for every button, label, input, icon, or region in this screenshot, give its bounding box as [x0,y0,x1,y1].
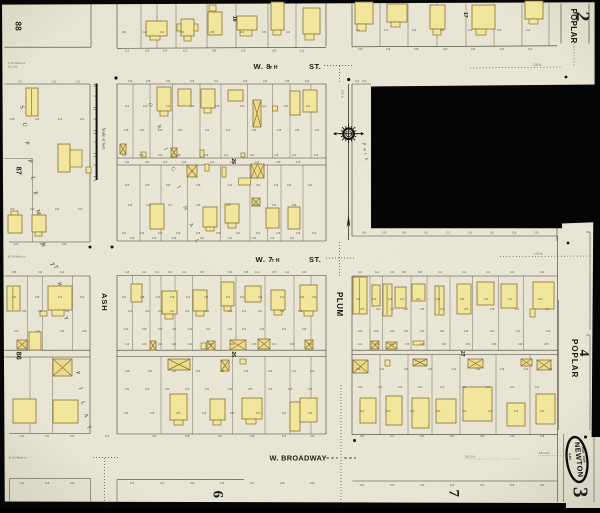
svg-text:118: 118 [196,231,201,235]
svg-text:114: 114 [20,434,25,438]
svg-text:2: 2 [572,12,594,22]
svg-text:116: 116 [282,411,287,415]
svg-text:114: 114 [272,203,277,207]
svg-text:106: 106 [510,434,515,438]
svg-text:B Ch.West of: B Ch.West of [8,255,26,259]
svg-text:118: 118 [276,231,281,235]
svg-text:7: 7 [446,490,462,498]
svg-text:104: 104 [295,128,300,132]
svg-text:116: 116 [390,307,395,311]
svg-text:102: 102 [160,30,165,34]
svg-text:102: 102 [390,483,395,487]
svg-text:6: 6 [210,491,226,499]
svg-text:112: 112 [290,236,295,240]
svg-text:102: 102 [158,309,163,313]
svg-text:104: 104 [22,309,27,313]
svg-text:102: 102 [183,49,188,53]
svg-text:118: 118 [274,183,279,187]
svg-text:104: 104 [166,183,171,187]
svg-text:114: 114 [535,385,540,389]
svg-text:118: 118 [274,153,279,157]
svg-text:102: 102 [358,47,363,51]
svg-text:104: 104 [228,270,233,274]
svg-text:112: 112 [155,270,160,274]
svg-text:118: 118 [241,49,246,53]
svg-text:112: 112 [262,104,267,108]
svg-text:118: 118 [540,434,545,438]
svg-text:102: 102 [540,409,545,413]
svg-text:112: 112 [298,309,303,313]
svg-text:102: 102 [404,329,409,333]
svg-text:110: 110 [308,342,313,346]
svg-text:104: 104 [166,79,171,83]
svg-text:106: 106 [122,153,127,157]
svg-text:88: 88 [14,22,23,32]
svg-text:27: 27 [459,351,465,357]
svg-text:112: 112 [452,367,457,371]
svg-text:110: 110 [284,104,289,108]
svg-text:116: 116 [490,231,495,235]
svg-text:106: 106 [378,385,383,389]
svg-text:104: 104 [376,307,381,311]
svg-text:114: 114 [486,385,491,389]
svg-text:112: 112 [508,297,513,301]
svg-text:118: 118 [150,411,155,415]
svg-text:112: 112 [186,295,191,299]
svg-text:PLUM: PLUM [335,292,344,317]
svg-text:108: 108 [254,203,259,207]
svg-text:116: 116 [476,367,481,371]
svg-text:106: 106 [360,307,365,311]
svg-text:108: 108 [546,329,551,333]
svg-text:106: 106 [250,153,255,157]
svg-text:T: T [272,258,275,263]
svg-text:112: 112 [125,49,130,53]
svg-text:106: 106 [252,342,257,346]
svg-text:118: 118 [230,411,235,415]
svg-text:110: 110 [424,231,429,235]
svg-text:116: 116 [143,104,148,108]
svg-text:118: 118 [176,231,181,235]
svg-text:116: 116 [185,309,190,313]
svg-text:104: 104 [300,295,305,299]
svg-text:112: 112 [158,231,163,235]
svg-text:102: 102 [256,411,261,415]
svg-text:118: 118 [190,79,195,83]
svg-text:114: 114 [105,434,110,438]
svg-text:116: 116 [158,327,163,331]
svg-text:108: 108 [280,481,285,485]
svg-text:102: 102 [228,387,233,391]
svg-text:112: 112 [242,309,247,313]
svg-text:KAN.: KAN. [568,453,573,461]
svg-text:110: 110 [440,307,445,311]
svg-text:116: 116 [270,236,275,240]
svg-text:104: 104 [272,49,277,53]
svg-text:106: 106 [310,434,315,438]
svg-text:104: 104 [122,295,127,299]
svg-text:118: 118 [244,369,249,373]
svg-text:106: 106 [410,409,415,413]
svg-text:108: 108 [250,434,255,438]
svg-text:116: 116 [358,270,363,274]
svg-text:102: 102 [148,369,153,373]
svg-text:114: 114 [163,49,168,53]
svg-text:106: 106 [262,30,267,34]
svg-text:108: 108 [176,153,181,157]
svg-text:118: 118 [398,385,403,389]
svg-text:116: 116 [140,231,145,235]
svg-text:108: 108 [12,270,17,274]
svg-text:106: 106 [165,387,170,391]
svg-text:18.10 ft.: 18.10 ft. [465,455,476,459]
svg-text:118: 118 [182,160,187,164]
svg-text:112: 112 [224,153,229,157]
svg-text:110: 110 [125,160,130,164]
svg-text:116: 116 [156,295,161,299]
svg-text:104: 104 [180,30,185,34]
svg-text:118: 118 [125,270,130,274]
svg-text:118: 118 [296,160,301,164]
svg-text:3: 3 [569,487,593,498]
svg-text:106: 106 [420,342,425,346]
svg-text:110: 110 [163,160,168,164]
svg-text:116: 116 [312,231,317,235]
svg-text:116: 116 [526,28,531,32]
svg-text:118: 118 [208,342,213,346]
svg-text:108: 108 [185,434,190,438]
svg-text:110: 110 [360,483,365,487]
svg-text:102: 102 [428,367,433,371]
svg-text:112: 112 [438,270,443,274]
svg-text:114: 114 [528,47,533,51]
svg-text:106: 106 [145,49,150,53]
svg-text:106: 106 [356,297,361,301]
svg-text:4: 4 [576,350,591,357]
svg-text:110: 110 [12,295,17,299]
svg-text:108: 108 [292,203,297,207]
svg-text:108: 108 [124,128,129,132]
svg-text:116: 116 [145,387,150,391]
svg-text:104: 104 [145,160,150,164]
svg-text:106: 106 [145,183,150,187]
svg-text:108: 108 [125,369,130,373]
svg-text:116: 116 [160,481,165,485]
svg-text:106: 106 [252,128,257,132]
svg-text:108: 108 [276,160,281,164]
svg-text:ST.: ST. [309,255,321,264]
svg-text:118: 118 [244,270,249,274]
svg-text:110: 110 [205,128,210,132]
svg-text:112: 112 [384,28,389,32]
svg-text:104: 104 [468,28,473,32]
svg-text:114: 114 [510,385,515,389]
svg-text:112: 112 [20,481,25,485]
svg-text:87: 87 [15,167,24,175]
svg-text:112: 112 [228,236,233,240]
svg-text:118: 118 [374,329,379,333]
svg-text:118: 118 [314,153,319,157]
svg-text:108: 108 [285,79,290,83]
svg-text:118: 118 [139,153,144,157]
svg-text:102: 102 [308,183,313,187]
svg-text:114: 114 [188,342,193,346]
svg-text:104: 104 [190,104,195,108]
svg-text:108: 108 [196,369,201,373]
svg-text:110: 110 [172,369,177,373]
svg-text:116: 116 [172,342,177,346]
svg-text:108: 108 [82,329,87,333]
svg-text:167: 167 [18,80,23,84]
svg-text:106: 106 [172,327,177,331]
svg-text:114: 114 [268,387,273,391]
svg-text:106: 106 [176,411,181,415]
svg-text:163: 163 [76,80,81,84]
svg-text:102: 102 [152,434,157,438]
svg-text:106: 106 [390,329,395,333]
svg-text:116: 116 [497,28,502,32]
svg-text:112: 112 [375,342,380,346]
svg-text:104: 104 [263,79,268,83]
svg-text:108: 108 [518,342,523,346]
svg-text:110: 110 [185,387,190,391]
svg-text:116: 116 [540,270,545,274]
svg-text:112: 112 [14,329,19,333]
svg-text:110: 110 [65,309,70,313]
svg-text:104: 104 [287,183,292,187]
svg-text:112: 112 [36,329,41,333]
svg-text:118: 118 [548,367,553,371]
svg-text:116: 116 [78,207,83,211]
svg-text:116: 116 [480,483,485,487]
svg-text:116: 116 [282,434,287,438]
svg-text:110: 110 [310,369,315,373]
svg-text:Scale of feet.: Scale of feet. [102,128,107,150]
svg-text:108: 108 [216,231,221,235]
svg-text:104: 104 [402,270,407,274]
svg-text:104: 104 [38,309,43,313]
svg-text:118: 118 [418,270,423,274]
svg-text:112: 112 [80,117,85,121]
svg-text:114: 114 [272,342,277,346]
svg-text:112: 112 [228,183,233,187]
svg-text:118: 118 [512,231,517,235]
svg-text:104: 104 [228,327,233,331]
svg-text:118: 118 [220,481,225,485]
svg-text:108: 108 [140,295,145,299]
svg-text:114: 114 [240,30,245,34]
svg-text:104: 104 [450,434,455,438]
svg-text:B Ch.West of: B Ch.West of [9,456,27,460]
svg-text:118: 118 [356,367,361,371]
svg-text:112: 112 [300,49,305,53]
svg-text:116: 116 [260,327,265,331]
svg-text:116: 116 [510,270,515,274]
svg-text:118: 118 [125,183,130,187]
svg-text:102: 102 [125,387,130,391]
svg-text:118: 118 [386,47,391,51]
svg-text:104: 104 [60,329,65,333]
svg-text:110: 110 [315,128,320,132]
svg-text:108: 108 [226,203,231,207]
svg-text:116: 116 [462,409,467,413]
svg-text:108: 108 [310,481,315,485]
svg-text:104: 104 [471,47,476,51]
svg-text:112: 112 [308,387,313,391]
svg-text:106: 106 [272,270,277,274]
svg-text:104: 104 [362,231,367,235]
svg-text:118: 118 [35,117,40,121]
svg-text:102: 102 [240,295,245,299]
svg-text:104: 104 [442,342,447,346]
svg-text:118: 118 [288,387,293,391]
svg-text:106: 106 [62,242,67,246]
svg-text:104: 104 [420,483,425,487]
svg-text:102: 102 [258,309,263,313]
svg-text:118: 118 [462,385,467,389]
svg-text:116: 116 [142,270,147,274]
svg-text:T: T [270,65,273,70]
svg-text:114: 114 [282,327,287,331]
svg-text:112: 112 [358,385,363,389]
svg-text:106: 106 [124,411,129,415]
svg-text:114: 114 [380,367,385,371]
svg-text:102: 102 [418,385,423,389]
svg-text:104: 104 [128,79,133,83]
svg-text:106: 106 [230,160,235,164]
svg-text:110: 110 [205,309,210,313]
svg-text:116: 116 [412,28,417,32]
svg-text:114: 114 [515,307,520,311]
svg-text:104: 104 [312,295,317,299]
svg-text:114: 114 [390,342,395,346]
svg-text:106: 106 [248,387,253,391]
svg-text:104: 104 [302,327,307,331]
svg-text:110: 110 [55,207,60,211]
svg-text:112: 112 [356,28,361,32]
svg-text:H: H [274,65,278,71]
svg-text:116: 116 [58,117,63,121]
svg-text:108: 108 [10,117,15,121]
svg-text:18.10 ft.: 18.10 ft. [539,451,550,455]
svg-text:108: 108 [268,369,273,373]
svg-text:118: 118 [70,481,75,485]
svg-text:102: 102 [360,409,365,413]
svg-text:104: 104 [145,309,150,313]
svg-text:26: 26 [230,352,236,358]
svg-text:116: 116 [252,236,257,240]
svg-text:114: 114 [358,342,363,346]
svg-text:102: 102 [404,307,409,311]
svg-text:110: 110 [60,270,65,274]
svg-text:POPLAR: POPLAR [570,339,579,378]
svg-text:120: 120 [534,231,539,235]
svg-text:104: 104 [212,49,217,53]
svg-text:108: 108 [490,307,495,311]
svg-text:118: 118 [290,342,295,346]
svg-text:102: 102 [540,483,545,487]
svg-text:118: 118 [358,329,363,333]
svg-text:108: 108 [146,79,151,83]
svg-text:118: 118 [464,329,469,333]
svg-text:112: 112 [280,295,285,299]
svg-text:104: 104 [240,104,245,108]
svg-text:114: 114 [124,327,129,331]
svg-text:108: 108 [130,236,135,240]
svg-text:102: 102 [243,79,248,83]
svg-text:108: 108 [40,242,45,246]
svg-text:116: 116 [128,309,133,313]
svg-text:108: 108 [405,342,410,346]
svg-text:116: 116 [80,295,85,299]
svg-text:106: 106 [178,128,183,132]
svg-text:106: 106 [404,367,409,371]
svg-text:110: 110 [220,369,225,373]
svg-text:114: 114 [200,236,205,240]
svg-text:116: 116 [226,295,231,299]
svg-text:116: 116 [152,236,157,240]
svg-text:104: 104 [200,270,205,274]
svg-text:110: 110 [205,387,210,391]
svg-text:116: 116 [70,434,75,438]
svg-text:106: 106 [436,409,441,413]
svg-text:176 ft.: 176 ft. [534,252,543,256]
svg-text:102: 102 [420,329,425,333]
svg-text:17: 17 [462,12,468,18]
svg-text:106: 106 [302,270,307,274]
svg-text:102: 102 [480,434,485,438]
svg-text:106: 106 [460,297,465,301]
svg-text:116: 116 [256,231,261,235]
svg-text:118: 118 [277,128,282,132]
svg-text:118: 118 [510,483,515,487]
svg-text:102: 102 [443,47,448,51]
svg-text:110: 110 [236,231,241,235]
svg-text:114: 114 [524,367,529,371]
svg-text:16: 16 [231,16,237,22]
svg-text:110: 110 [286,30,291,34]
svg-text:112: 112 [446,231,451,235]
svg-text:116: 116 [436,297,441,301]
svg-text:104: 104 [38,270,43,274]
svg-text:106: 106 [388,297,393,301]
svg-text:118: 118 [202,411,207,415]
svg-text:114: 114 [255,270,260,274]
svg-text:114: 114 [188,327,193,331]
svg-text:106: 106 [492,342,497,346]
svg-text:110: 110 [166,104,171,108]
svg-text:118: 118 [450,483,455,487]
svg-text:116: 116 [306,104,311,108]
svg-text:118: 118 [204,153,209,157]
svg-text:108: 108 [35,295,40,299]
svg-text:116: 116 [125,342,130,346]
svg-text:106: 106 [538,297,543,301]
svg-text:104: 104 [122,231,127,235]
svg-text:106: 106 [372,297,377,301]
svg-text:102: 102 [420,434,425,438]
svg-text:108: 108 [420,307,425,311]
svg-text:102: 102 [305,79,310,83]
svg-text:ST.: ST. [309,62,321,71]
svg-text:112: 112 [486,270,491,274]
svg-text:108: 108 [204,295,209,299]
svg-text:104: 104 [218,434,223,438]
svg-text:116: 116 [258,295,263,299]
svg-text:108: 108 [196,203,201,207]
svg-text:St. Line: St. Line [8,64,18,68]
svg-text:110: 110 [170,309,175,313]
